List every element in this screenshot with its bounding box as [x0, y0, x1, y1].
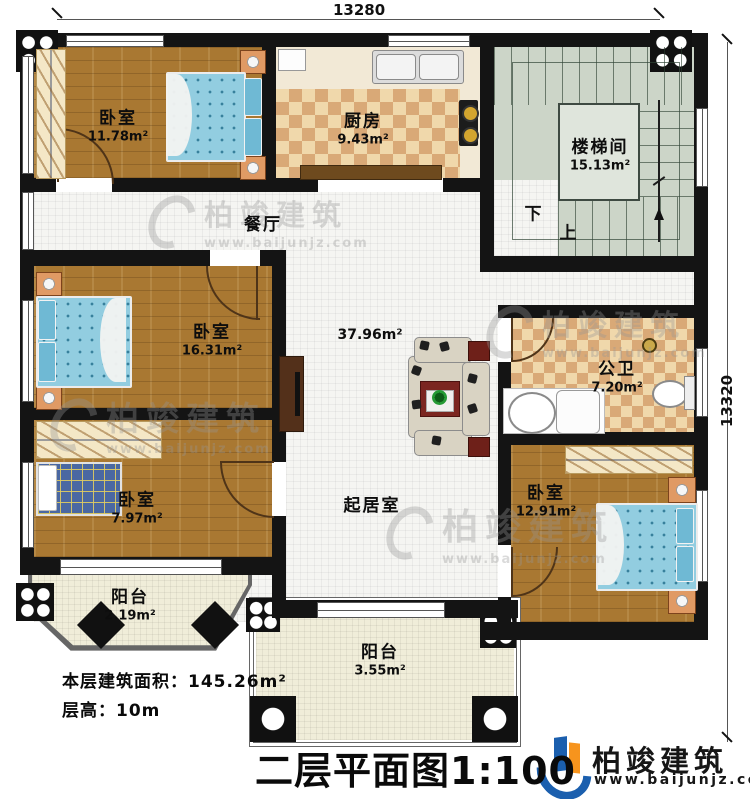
stair-arrow-up-icon	[654, 208, 664, 220]
dining-left-window	[22, 192, 34, 250]
bedroom1-pillow-2	[244, 118, 262, 156]
floor-area-note: 本层建筑面积：145.26m²	[62, 667, 287, 692]
kitchen-lower-cabinet	[300, 165, 442, 180]
floor-height-label: 层高：	[62, 701, 116, 721]
room-name: 卧室	[88, 108, 148, 130]
room-label-balcony2: 阳台 3.55m²	[354, 642, 405, 681]
watermark-url: www.baijunjz.com	[204, 236, 369, 251]
room-name: 楼梯间	[570, 137, 630, 159]
kitchen-sink-basin-left	[376, 54, 416, 80]
balcony1-ornament	[16, 583, 54, 621]
room-name: 卧室	[516, 483, 576, 505]
bedroom1-left-window	[22, 56, 34, 174]
kitchen-top-window	[388, 35, 470, 47]
bedroom1-wardrobe	[36, 49, 66, 179]
plan-title: 二层平面图1:100	[255, 740, 576, 799]
watermark-text-block: 柏竣建筑 www.baijunjz.com	[106, 392, 271, 457]
bedroom4-nightstand-top	[668, 477, 696, 503]
room-area: 2.19m²	[104, 609, 155, 626]
room-name: 公卫	[591, 359, 642, 381]
bathroom-sink	[508, 392, 556, 434]
stair-direction-line	[658, 100, 660, 242]
watermark-4: 柏竣建筑 www.baijunjz.com	[388, 498, 614, 567]
room-label-bathroom: 公卫 7.20m²	[591, 359, 642, 398]
room-name: 卧室	[182, 322, 242, 344]
room-area: 11.78m²	[88, 130, 148, 147]
sofa-pillow-7	[431, 435, 441, 445]
room-area: 9.43m²	[337, 133, 388, 150]
watermark-name: 柏竣建筑	[542, 302, 707, 344]
room-label-stairwell: 楼梯间 15.13m²	[570, 137, 630, 176]
stair-down-label: 下	[525, 200, 542, 225]
room-area: 37.96m²	[337, 326, 402, 344]
stove-burner-top	[462, 105, 479, 122]
room-label-bedroom1: 卧室 11.78m²	[88, 108, 148, 147]
room-label-kitchen: 厨房 9.43m²	[337, 111, 388, 150]
watermark-url: www.baijunjz.com	[442, 552, 614, 567]
bedroom3-door-leaf	[220, 461, 274, 463]
brand-url: www.baijunjz.com	[594, 772, 750, 788]
watermark-text-block: 柏竣建筑 www.baijunjz.com	[204, 192, 369, 251]
balcony2-pillar-left	[250, 696, 296, 742]
stair-up-label: 上	[560, 219, 577, 244]
bedroom2-nightstand-top	[36, 272, 62, 296]
top-dimension-label: 13280	[333, 1, 385, 19]
room-label-dining: 餐厅	[244, 214, 282, 236]
room-name: 卧室	[111, 490, 162, 512]
watermark-text-block: 柏竣建筑 www.baijunjz.com	[542, 302, 707, 361]
side-table-bottom	[468, 437, 490, 457]
bedroom2-blanket	[100, 298, 126, 382]
right-dimension-label: 13320	[718, 371, 736, 431]
sofa-chaise	[462, 362, 490, 436]
bedroom1-nightstand-top	[240, 50, 266, 74]
floor-height-note: 层高：10m	[62, 696, 160, 721]
room-area: 7.97m²	[111, 512, 162, 529]
floor-height-value: 10m	[116, 701, 160, 721]
kitchen-cutting-board	[278, 49, 306, 71]
bedroom2-pillow-2	[38, 342, 56, 382]
stove-burner-bottom	[462, 127, 479, 144]
bedroom3-pillow	[38, 465, 57, 511]
room-name: 厨房	[337, 111, 388, 133]
bathroom-toilet-bowl	[652, 380, 688, 408]
room-name: 起居室	[344, 495, 401, 517]
kitchen-passage-opening	[318, 178, 443, 192]
bedroom3-door-opening	[272, 462, 286, 516]
watermark-url: www.baijunjz.com	[106, 442, 271, 457]
sofa-pillow-4	[411, 399, 421, 409]
floor-area-label: 本层建筑面积：	[62, 672, 188, 692]
room-name: 餐厅	[244, 214, 282, 236]
room-label-bedroom4: 卧室 12.91m²	[516, 483, 576, 522]
room-area: 12.91m²	[516, 505, 576, 522]
bathroom-toilet-tank	[684, 376, 695, 410]
bedroom4-wardrobe	[565, 446, 693, 474]
coffee-table-plant	[432, 390, 447, 405]
top-dimension-tick-left	[51, 7, 62, 18]
bedroom2-left-window	[22, 300, 34, 402]
bedroom2-door-leaf	[256, 266, 258, 320]
room-label-living: 起居室	[344, 495, 401, 517]
room-area: 7.20m²	[591, 381, 642, 398]
bedroom1-pillow-1	[244, 78, 262, 116]
bedroom4-pillow-2	[676, 546, 694, 582]
tv-screen	[295, 372, 300, 416]
balcony2-pillar-right	[472, 696, 518, 742]
room-label-living-area: 37.96m²	[337, 326, 402, 344]
top-dimension-line	[57, 19, 660, 20]
stairwell-right-window	[696, 108, 708, 187]
bedroom1-top-window	[66, 35, 164, 47]
bedroom3-left-window	[22, 462, 34, 548]
top-dimension-tick-right	[653, 7, 664, 18]
room-name: 阳台	[354, 642, 405, 664]
room-name: 阳台	[104, 587, 155, 609]
bedroom3-balcony-window	[60, 559, 222, 575]
watermark-name: 柏竣建筑	[106, 392, 271, 440]
bedroom4-pillow-1	[676, 508, 694, 544]
floor-area-value: 145.26m²	[188, 672, 287, 692]
floorplan-page: 13280 13320	[0, 0, 750, 799]
watermark-2: 柏竣建筑 www.baijunjz.com	[488, 302, 707, 361]
sofa-pillow-1	[419, 340, 430, 351]
wall-stairwell-left	[480, 33, 494, 272]
wall-bedroom4-bottom	[480, 622, 708, 640]
room-area: 16.31m²	[182, 344, 242, 361]
room-label-bedroom2: 卧室 16.31m²	[182, 322, 242, 361]
room-label-bedroom3: 卧室 7.97m²	[111, 490, 162, 529]
room-label-balcony1: 阳台 2.19m²	[104, 587, 155, 626]
room-area: 15.13m²	[570, 159, 630, 176]
tv-cabinet	[279, 356, 304, 432]
kitchen-sink-basin-right	[419, 54, 459, 80]
bedroom2-door-opening	[210, 250, 260, 266]
room-area: 3.55m²	[354, 664, 405, 681]
watermark-3: 柏竣建筑 www.baijunjz.com	[52, 392, 271, 457]
living-balcony-door	[317, 602, 445, 618]
bedroom4-nightstand-bottom	[668, 588, 696, 614]
watermark-name: 柏竣建筑	[204, 192, 369, 234]
wall-stairwell-bottom	[480, 256, 708, 272]
bedroom2-pillow-1	[38, 300, 56, 340]
